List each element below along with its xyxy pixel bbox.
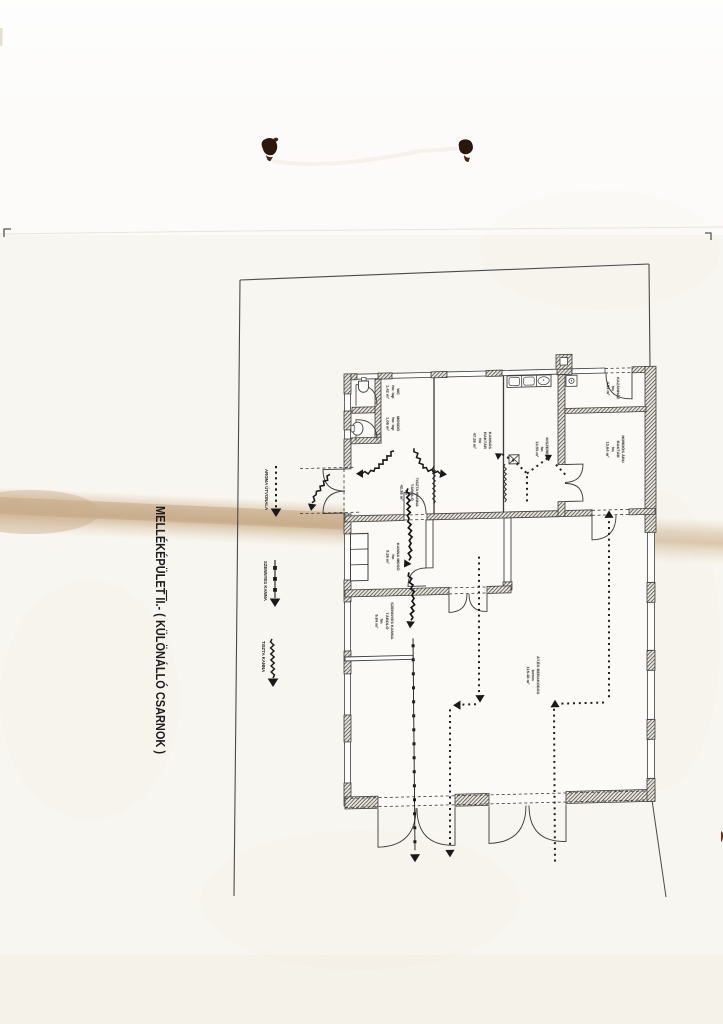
svg-text:SZENNYES KANNA: SZENNYES KANNA bbox=[263, 561, 268, 601]
svg-text:MELLÉKÉPÜLET II.- ( KÜLÖNÁLLÓ: MELLÉKÉPÜLET II.- ( KÜLÖNÁLLÓ CSARNOK ) bbox=[153, 506, 168, 754]
svg-text:TISZTA KANNA: TISZTA KANNA bbox=[261, 641, 266, 672]
svg-text:AROMA ÚTVONALA: AROMA ÚTVONALA bbox=[264, 469, 269, 510]
svg-text:MOSDÓfm: lap1.08 m²: MOSDÓfm: lap1.08 m² bbox=[386, 416, 401, 432]
